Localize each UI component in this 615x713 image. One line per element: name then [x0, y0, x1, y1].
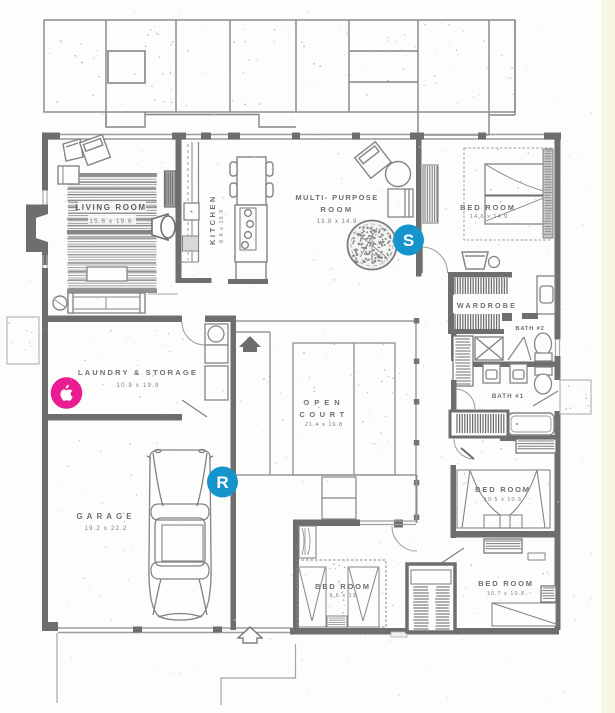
svg-text:BATH #1: BATH #1	[492, 393, 524, 400]
svg-text:BED ROOM: BED ROOM	[315, 582, 371, 591]
svg-text:10.5 x 10.5: 10.5 x 10.5	[484, 497, 522, 503]
svg-text:9.6 x 13: 9.6 x 13	[329, 593, 357, 599]
svg-text:13.8 x 14.8: 13.8 x 14.8	[317, 219, 358, 225]
svg-text:21.4 x 16.8: 21.4 x 16.8	[305, 422, 343, 428]
svg-text:BED ROOM: BED ROOM	[460, 203, 516, 212]
svg-text:15.6 x 19.6: 15.6 x 19.6	[89, 218, 132, 225]
svg-text:WARDROBE: WARDROBE	[457, 301, 517, 310]
svg-text:10.7 x 10.8: 10.7 x 10.8	[487, 591, 525, 597]
svg-text:19.2 x 22.2: 19.2 x 22.2	[85, 526, 128, 532]
svg-text:LIVING ROOM: LIVING ROOM	[75, 203, 146, 212]
svg-text:14.6 x 14.9: 14.6 x 14.9	[470, 214, 508, 220]
svg-text:S: S	[403, 231, 414, 250]
svg-text:BED ROOM: BED ROOM	[478, 579, 534, 588]
svg-text:GARAGE: GARAGE	[76, 512, 135, 521]
svg-text:BATH #2: BATH #2	[515, 326, 544, 332]
svg-text:ROOM: ROOM	[320, 205, 353, 214]
svg-text:MULTI- PURPOSE: MULTI- PURPOSE	[295, 193, 378, 202]
svg-text:BED ROOM: BED ROOM	[475, 485, 531, 494]
svg-text:R: R	[216, 473, 228, 492]
svg-text:10.9 x 19.9: 10.9 x 19.9	[117, 383, 160, 389]
svg-text:OPEN: OPEN	[303, 398, 344, 407]
svg-text:KITCHEN: KITCHEN	[208, 194, 217, 245]
svg-text:8.6 x 15.9: 8.6 x 15.9	[219, 209, 225, 243]
svg-text:LAUNDRY & STORAGE: LAUNDRY & STORAGE	[78, 368, 198, 377]
svg-text:COURT: COURT	[299, 410, 348, 419]
